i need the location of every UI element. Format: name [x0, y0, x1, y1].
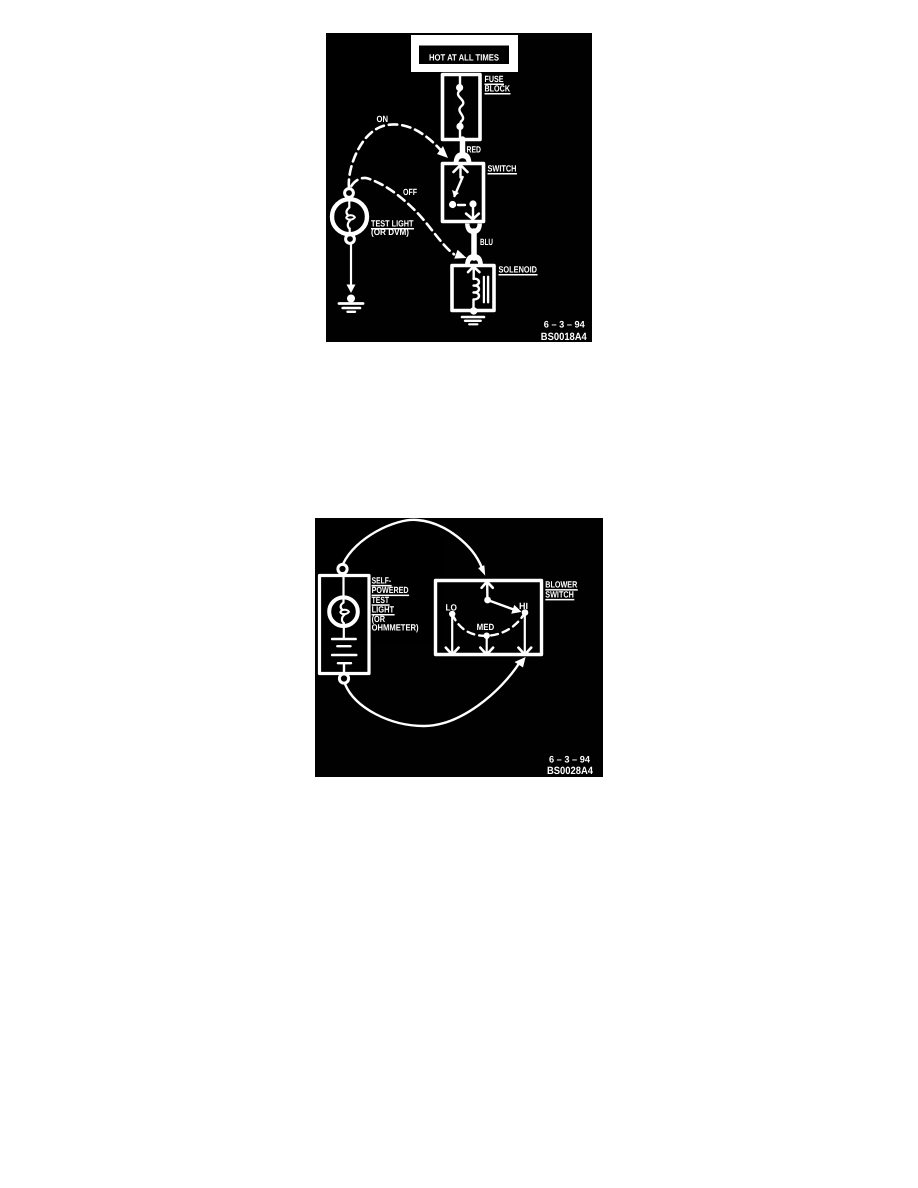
- svg-text:HI: HI: [519, 601, 528, 611]
- svg-text:6 – 3 – 94: 6 – 3 – 94: [544, 320, 586, 331]
- svg-text:BS0028A4: BS0028A4: [547, 765, 593, 777]
- svg-text:POWERED: POWERED: [372, 585, 409, 595]
- svg-text:BLOWER: BLOWER: [545, 580, 577, 590]
- svg-text:(OR DVM): (OR DVM): [371, 227, 409, 237]
- svg-text:BLU: BLU: [480, 237, 493, 247]
- svg-text:TEST: TEST: [372, 595, 390, 605]
- svg-text:BLOCK: BLOCK: [485, 84, 511, 94]
- svg-text:MED: MED: [477, 622, 495, 632]
- svg-text:BS0018A4: BS0018A4: [541, 331, 587, 342]
- svg-text:OFF: OFF: [403, 187, 417, 197]
- svg-text:ON: ON: [377, 114, 389, 124]
- svg-text:OHMMETER): OHMMETER): [372, 623, 419, 633]
- svg-text:RED: RED: [467, 145, 482, 155]
- svg-text:FUSE: FUSE: [485, 74, 504, 84]
- svg-text:SELF-: SELF-: [372, 575, 392, 585]
- svg-text:HOT AT ALL TIMES: HOT AT ALL TIMES: [429, 52, 499, 62]
- svg-text:SOLENOID: SOLENOID: [499, 265, 538, 275]
- svg-text:SWITCH: SWITCH: [545, 589, 574, 599]
- svg-text:SWITCH: SWITCH: [488, 164, 517, 174]
- svg-text:6 – 3 – 94: 6 – 3 – 94: [549, 755, 591, 766]
- svg-text:LO: LO: [446, 602, 458, 612]
